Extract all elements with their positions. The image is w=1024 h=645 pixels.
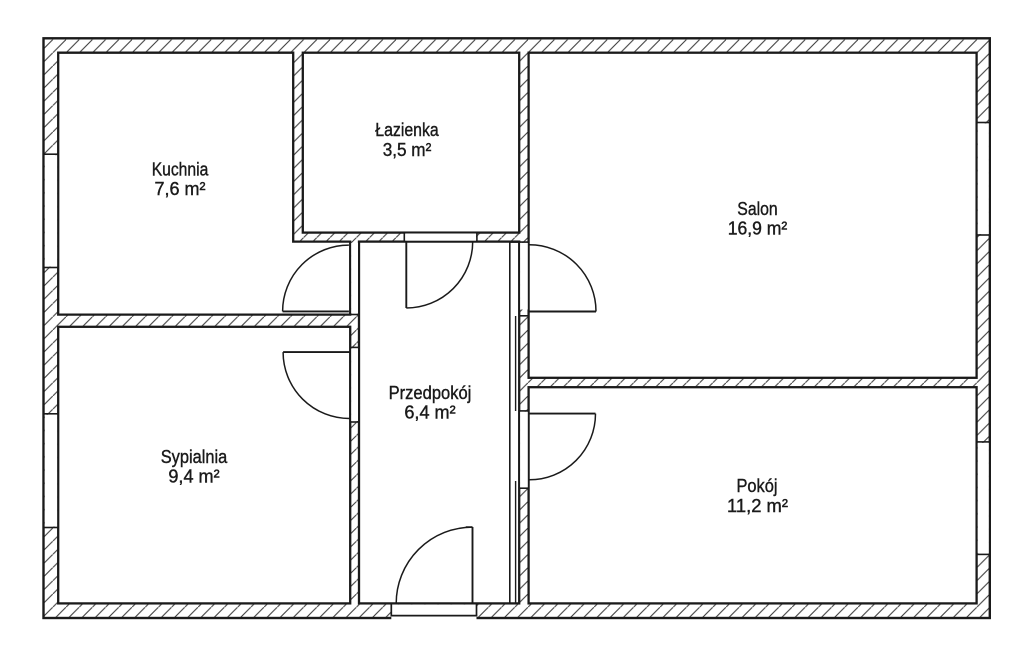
svg-text:Salon: Salon — [737, 198, 777, 219]
svg-text:7,6 m²: 7,6 m² — [155, 178, 206, 199]
svg-text:6,4 m²: 6,4 m² — [404, 402, 455, 423]
svg-text:Kuchnia: Kuchnia — [152, 158, 209, 179]
svg-text:Pokój: Pokój — [736, 475, 777, 496]
svg-text:11,2 m²: 11,2 m² — [727, 495, 788, 516]
svg-text:9,4 m²: 9,4 m² — [168, 466, 219, 487]
svg-text:16,9 m²: 16,9 m² — [728, 218, 788, 239]
svg-text:3,5 m²: 3,5 m² — [383, 139, 432, 160]
svg-text:Przedpokój: Przedpokój — [389, 382, 472, 403]
svg-text:Łazienka: Łazienka — [375, 119, 439, 140]
svg-text:Sypialnia: Sypialnia — [161, 446, 228, 467]
